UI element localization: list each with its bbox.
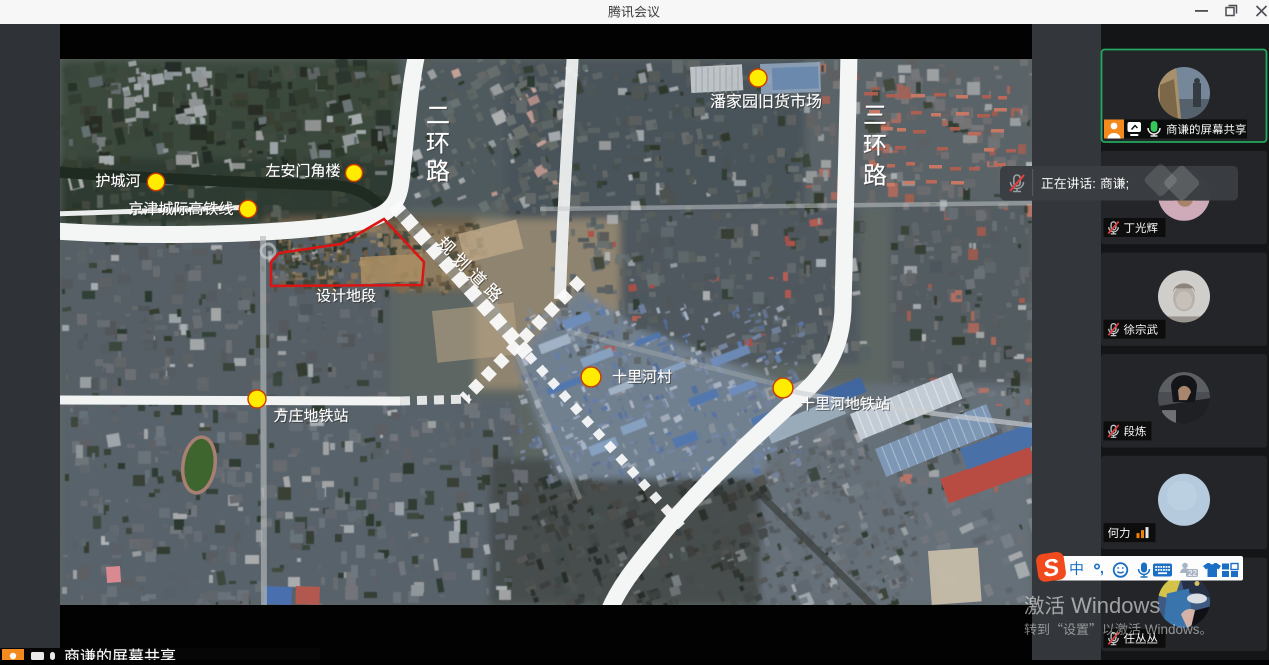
svg-text:,: , xyxy=(1100,560,1104,576)
svg-text:;: ; xyxy=(1126,176,1130,191)
svg-text:Windows: Windows xyxy=(1145,622,1200,637)
svg-text:Windows: Windows xyxy=(1071,593,1160,618)
svg-text::: : xyxy=(1092,176,1096,191)
svg-text:22: 22 xyxy=(1188,569,1197,578)
